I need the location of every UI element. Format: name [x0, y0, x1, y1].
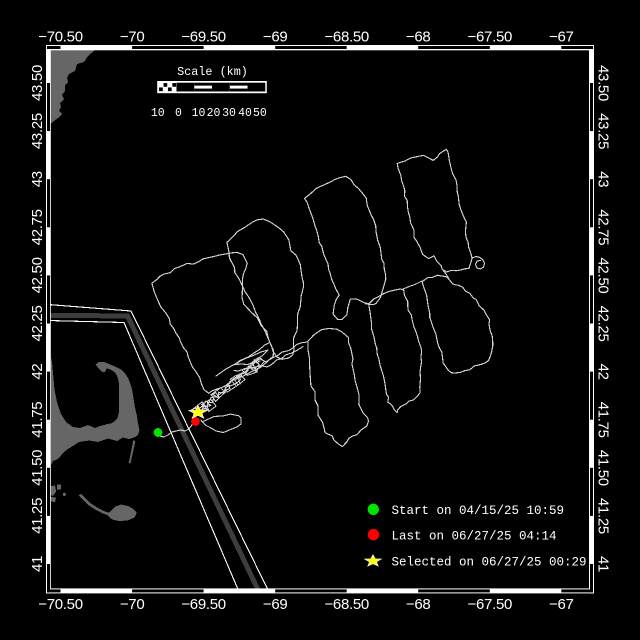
svg-text:42.25: 42.25 [595, 305, 612, 341]
svg-text:41.75: 41.75 [595, 402, 612, 438]
svg-text:41.25: 41.25 [29, 498, 46, 534]
svg-text:−69.50: −69.50 [181, 596, 226, 613]
svg-text:41: 41 [595, 556, 612, 572]
svg-text:−70.50: −70.50 [38, 29, 83, 46]
svg-text:−67.50: −67.50 [468, 596, 513, 613]
svg-text:40: 40 [238, 107, 252, 120]
svg-text:41.50: 41.50 [595, 450, 612, 486]
svg-text:43.50: 43.50 [595, 65, 612, 101]
svg-text:42.25: 42.25 [29, 305, 46, 341]
svg-text:42.50: 42.50 [29, 257, 46, 293]
svg-text:−68.50: −68.50 [324, 29, 369, 46]
svg-text:−67: −67 [549, 29, 574, 46]
svg-text:−68: −68 [406, 29, 431, 46]
svg-text:−68.50: −68.50 [324, 596, 369, 613]
svg-text:41.50: 41.50 [29, 450, 46, 486]
svg-text:−70: −70 [120, 29, 145, 46]
svg-text:41: 41 [29, 556, 46, 572]
svg-text:10: 10 [192, 107, 206, 120]
svg-text:41.75: 41.75 [29, 402, 46, 438]
svg-text:50: 50 [253, 107, 267, 120]
svg-text:42: 42 [595, 364, 612, 380]
svg-text:Selected on 06/27/25 00:29: Selected on 06/27/25 00:29 [392, 556, 587, 570]
svg-text:−70.50: −70.50 [38, 596, 83, 613]
svg-text:Start on 04/15/25 10:59: Start on 04/15/25 10:59 [392, 504, 565, 518]
svg-text:42: 42 [29, 364, 46, 380]
svg-text:30: 30 [222, 107, 236, 120]
svg-text:Scale (km): Scale (km) [177, 65, 248, 79]
svg-text:42.50: 42.50 [595, 257, 612, 293]
svg-text:43.50: 43.50 [29, 65, 46, 101]
svg-text:−70: −70 [120, 596, 145, 613]
svg-text:−69.50: −69.50 [181, 29, 226, 46]
svg-text:42.75: 42.75 [595, 209, 612, 245]
svg-text:10: 10 [151, 107, 165, 120]
svg-text:−67.50: −67.50 [468, 29, 513, 46]
svg-text:−68: −68 [406, 596, 431, 613]
svg-text:0: 0 [175, 107, 182, 120]
svg-text:43: 43 [29, 171, 46, 187]
svg-text:43: 43 [595, 171, 612, 187]
svg-text:43.25: 43.25 [595, 113, 612, 149]
svg-text:42.75: 42.75 [29, 209, 46, 245]
svg-text:43.25: 43.25 [29, 113, 46, 149]
svg-text:41.25: 41.25 [595, 498, 612, 534]
svg-text:20: 20 [207, 107, 221, 120]
svg-text:Last on 06/27/25 04:14: Last on 06/27/25 04:14 [392, 530, 557, 544]
svg-text:−69: −69 [263, 596, 288, 613]
svg-text:−69: −69 [263, 29, 288, 46]
svg-text:−67: −67 [549, 596, 574, 613]
